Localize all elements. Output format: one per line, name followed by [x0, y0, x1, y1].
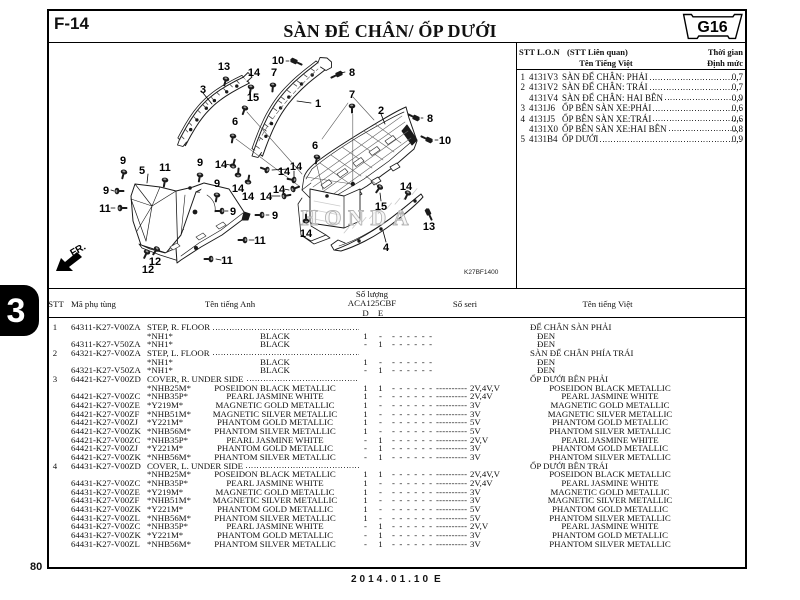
- svg-text:14: 14: [260, 191, 273, 203]
- svg-text:10: 10: [439, 135, 451, 147]
- svg-text:K27BF1400: K27BF1400: [464, 269, 499, 276]
- svg-text:6: 6: [232, 116, 238, 128]
- svg-text:HONDA: HONDA: [301, 205, 415, 230]
- svg-text:7: 7: [349, 89, 355, 101]
- svg-text:9: 9: [197, 157, 203, 169]
- svg-text:12: 12: [142, 264, 154, 276]
- svg-text:5: 5: [139, 165, 145, 177]
- svg-text:11: 11: [99, 203, 111, 215]
- svg-text:8: 8: [427, 113, 433, 125]
- svg-text:3: 3: [200, 84, 206, 96]
- svg-text:13: 13: [423, 221, 435, 233]
- svg-text:6: 6: [312, 140, 318, 152]
- svg-text:15: 15: [247, 92, 259, 104]
- svg-text:11: 11: [159, 162, 171, 174]
- svg-text:10: 10: [272, 55, 284, 67]
- svg-text:1: 1: [315, 98, 321, 110]
- svg-text:14: 14: [300, 228, 313, 240]
- svg-text:9: 9: [103, 185, 109, 197]
- svg-text:7: 7: [271, 67, 277, 79]
- svg-text:11: 11: [254, 235, 266, 247]
- svg-text:15: 15: [375, 201, 387, 213]
- svg-text:FR.: FR.: [69, 241, 89, 259]
- svg-text:9: 9: [214, 178, 220, 190]
- svg-text:9: 9: [230, 206, 236, 218]
- svg-text:4: 4: [383, 242, 390, 254]
- svg-text:8: 8: [349, 67, 355, 79]
- svg-text:9: 9: [120, 155, 126, 167]
- svg-text:14: 14: [242, 191, 255, 203]
- svg-text:9: 9: [272, 210, 278, 222]
- svg-text:14: 14: [290, 161, 303, 173]
- svg-text:14: 14: [248, 67, 261, 79]
- svg-text:11: 11: [221, 255, 233, 267]
- svg-text:14: 14: [400, 181, 413, 193]
- svg-text:14: 14: [273, 184, 286, 196]
- svg-text:14: 14: [215, 159, 228, 171]
- svg-text:2: 2: [378, 105, 384, 117]
- svg-text:13: 13: [218, 61, 230, 73]
